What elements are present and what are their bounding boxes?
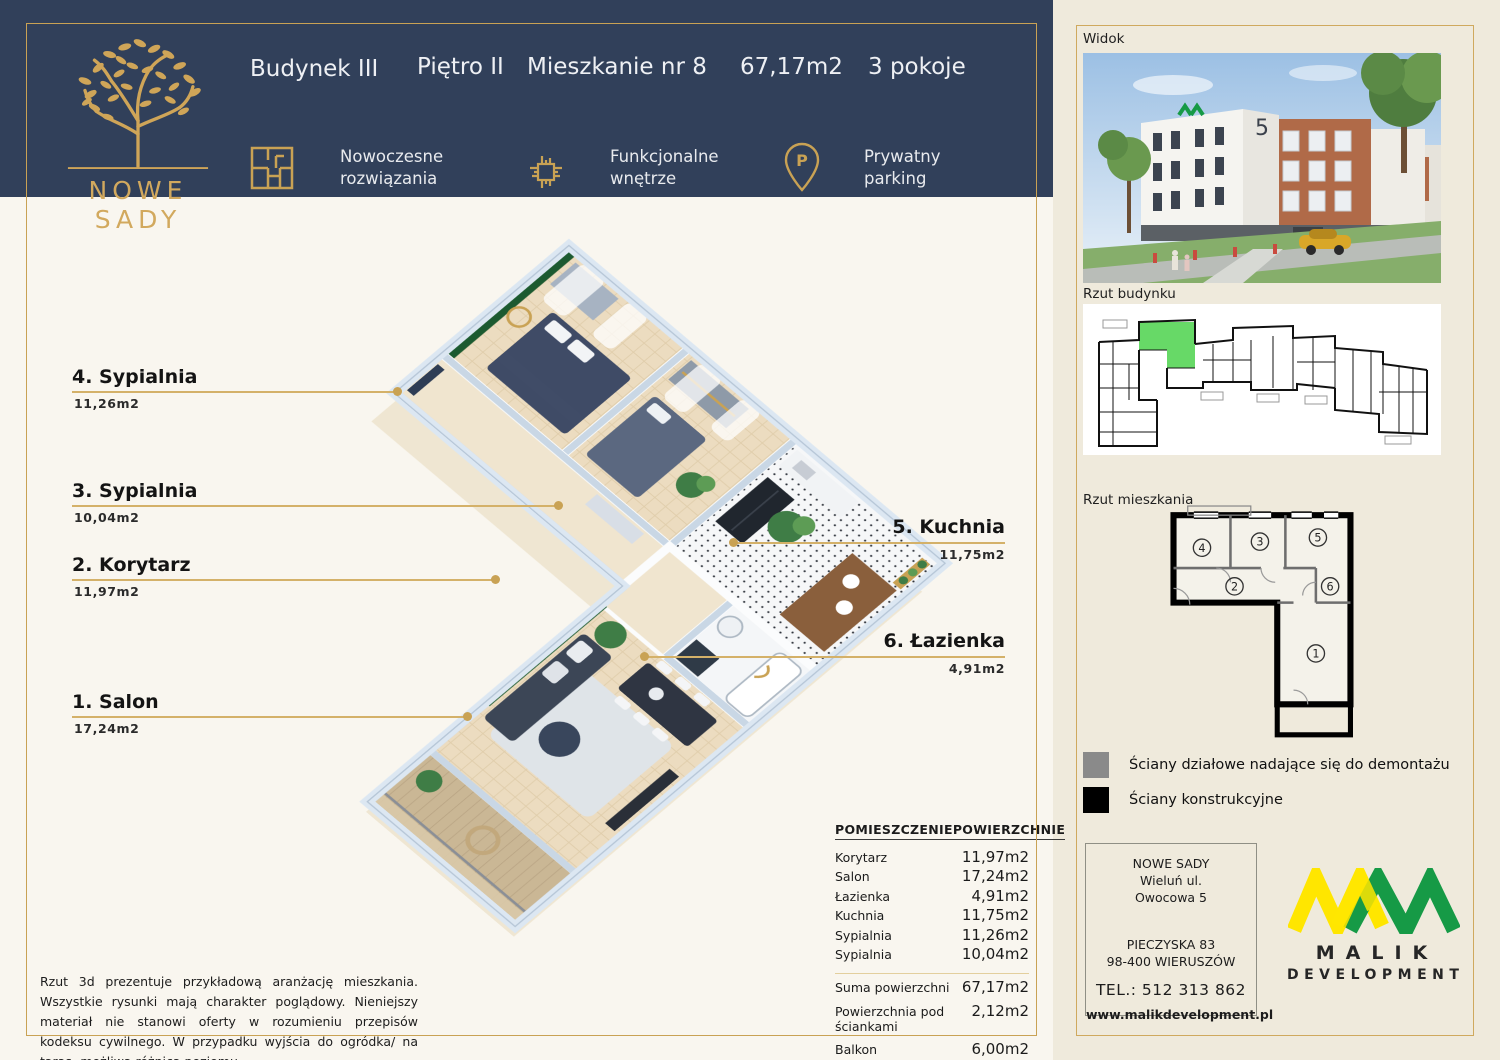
building-photo: 5 (1083, 53, 1441, 283)
tree-icon (58, 28, 218, 170)
rooms-title: 3 pokoje (868, 54, 966, 80)
summary-row: Balkon6,00m2 (835, 1040, 1029, 1058)
unit-title: Mieszkanie nr 8 (527, 54, 707, 80)
col-area: POWIERZCHNIE (953, 822, 1065, 840)
leader-dot-salon (463, 712, 472, 721)
legend-item-structural: Ściany konstrukcyjne (1083, 787, 1283, 813)
contact-phone: TEL.: 512 313 862 (1086, 981, 1256, 999)
leader-line-bedroom3 (72, 505, 559, 507)
room-circle-4: 4 (1198, 542, 1205, 555)
room-circle-3: 3 (1256, 536, 1263, 549)
table-row: Łazienka4,91m2 (835, 887, 1029, 905)
area-table-header: POMIESZCZENIE POWIERZCHNIE (835, 822, 1029, 840)
brand-logo: NOWE SADY (48, 28, 228, 234)
leader-dot-bathroom (640, 652, 649, 661)
leader-line-bedroom4 (72, 391, 398, 393)
contact-address: Wieluń ul. Owocowa 5 (1111, 873, 1231, 907)
floorplan-icon (250, 146, 294, 190)
contact-line3: PIECZYSKA 83 (1086, 937, 1256, 952)
table-row: Salon17,24m2 (835, 867, 1029, 885)
malik-logo-icon (1288, 868, 1460, 934)
room-area-bedroom4: 11,26m2 (74, 396, 139, 411)
widok-label: Widok (1083, 31, 1124, 47)
feature-label-2: Funkcjonalne wnętrze (610, 146, 750, 191)
building-number: 5 (1255, 116, 1269, 141)
room-circle-6: 6 (1327, 580, 1334, 593)
legend-swatch-gray (1083, 752, 1109, 778)
chip-icon (526, 152, 566, 192)
flyer-page: NOWE SADY Budynek III Piętro II Mieszkan… (0, 0, 1500, 1060)
room-label-bedroom3: 3. Sypialnia (72, 480, 197, 502)
room-label-bathroom: 6. Łazienka (883, 630, 1005, 652)
developer-logo: MALIK DEVELOPMENT (1284, 868, 1464, 983)
room-area-kitchen: 11,75m2 (940, 547, 1005, 562)
room-label-kitchen: 5. Kuchnia (892, 516, 1005, 538)
table-row: Kuchnia11,75m2 (835, 906, 1029, 924)
summary-row: Suma powierzchni67,17m2 (835, 978, 1029, 996)
area-table: POMIESZCZENIE POWIERZCHNIE Korytarz11,97… (835, 822, 1029, 1060)
legend-swatch-black (1083, 787, 1109, 813)
feature-label-3: Prywatny parking (864, 146, 984, 191)
room-area-bathroom: 4,91m2 (949, 661, 1005, 676)
room-area-salon: 17,24m2 (74, 721, 139, 736)
contact-line4: 98-400 WIERUSZÓW (1086, 954, 1256, 969)
room-circle-5: 5 (1314, 532, 1321, 545)
building-plan (1083, 304, 1441, 455)
parking-pin-icon: P (784, 142, 820, 192)
unit-plan: 4 3 5 2 6 1 (1160, 505, 1366, 745)
rzut-budynku-label: Rzut budynku (1083, 286, 1176, 302)
area-title: 67,17m2 (740, 54, 843, 80)
leader-dot-kitchen (729, 538, 738, 547)
table-row: Korytarz11,97m2 (835, 848, 1029, 866)
room-area-bedroom3: 10,04m2 (74, 510, 139, 525)
leader-dot-bedroom4 (393, 387, 402, 396)
building-title: Budynek III (250, 54, 405, 85)
developer-name: MALIK (1290, 942, 1464, 964)
leader-line-corridor (72, 579, 496, 581)
leader-dot-bedroom3 (554, 501, 563, 510)
contact-box: NOWE SADY Wieluń ul. Owocowa 5 PIECZYSKA… (1085, 843, 1257, 1016)
table-divider (835, 973, 1029, 974)
floor-title: Piętro II (417, 54, 504, 80)
feature-label-1: Nowoczesne rozwiązania (340, 146, 470, 191)
room-area-corridor: 11,97m2 (74, 584, 139, 599)
disclaimer-text: Rzut 3d prezentuje przykładową aranżację… (40, 972, 418, 1060)
room-label-corridor: 2. Korytarz (72, 554, 191, 576)
leader-line-salon (72, 716, 468, 718)
room-circle-1: 1 (1312, 648, 1319, 661)
summary-row: Powierzchnia pod ściankami2,12m2 (835, 1002, 1029, 1034)
legend-item-partition: Ściany działowe nadające się do demontaż… (1083, 752, 1450, 778)
room-label-salon: 1. Salon (72, 691, 159, 713)
svg-text:P: P (796, 151, 808, 170)
brand-name: NOWE SADY (48, 176, 228, 234)
leader-line-bathroom (645, 656, 1005, 658)
table-row: Sypialnia11,26m2 (835, 926, 1029, 944)
room-circle-2: 2 (1231, 580, 1238, 593)
table-row: Sypialnia10,04m2 (835, 945, 1029, 963)
contact-name: NOWE SADY (1086, 856, 1256, 871)
leader-line-kitchen (734, 542, 1005, 544)
room-label-bedroom4: 4. Sypialnia (72, 366, 197, 388)
leader-dot-corridor (491, 575, 500, 584)
developer-sub: DEVELOPMENT (1287, 967, 1464, 983)
col-room: POMIESZCZENIE (835, 822, 953, 840)
contact-website[interactable]: www.malikdevelopment.pl (1086, 1007, 1256, 1022)
apartment-3d-plan (126, 234, 959, 938)
